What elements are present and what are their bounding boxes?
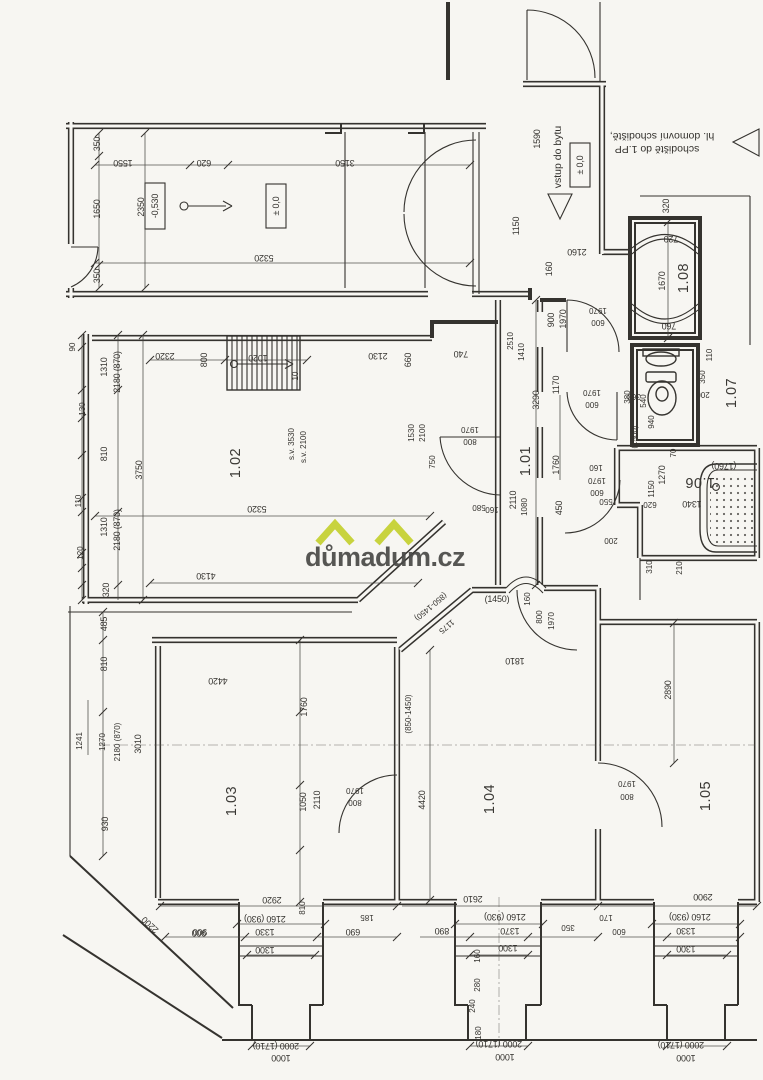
dim-label: 2130 (368, 351, 387, 361)
dim-label: 690 (346, 927, 361, 937)
dim-label: 160 (589, 463, 603, 472)
dim-label: 2110 (508, 491, 518, 510)
dim-label: 620 (643, 500, 657, 509)
corridor-dims: 350 1550 620 1650 2350 350 5320 3150 -0,… (92, 137, 355, 284)
bay-center-dims: 2610 2160 (930) 1370 1300 890 350 160 28… (435, 894, 626, 1062)
dim-label: 3010 (133, 734, 143, 753)
stair-count-label: 10 (291, 371, 300, 380)
dim-label: 1370 (500, 926, 519, 936)
dim-label: 1970 (558, 309, 568, 328)
door-size-label: 1970 (589, 306, 607, 315)
left-chain-dims: 485 810 1241 1270 2180 (870) 3010 930 22… (75, 617, 228, 938)
door-size-label: 1970 (618, 779, 636, 788)
level-label: -0,530 (150, 194, 160, 219)
dim-label: 200 (604, 536, 618, 545)
dimension-lines (78, 129, 761, 1050)
dim-label: 180 (474, 1026, 483, 1040)
ceiling-height-label: s.v. 2100 (299, 431, 308, 463)
dim-label: 2160 (930) (244, 914, 286, 924)
room-label: 1.07 (724, 378, 740, 408)
room-105-dims: 2890 1970 800 1.05 (618, 680, 714, 811)
dim-label: 720 (664, 234, 679, 244)
dim-label: 170 (599, 913, 613, 922)
room-label: 1.05 (698, 781, 714, 811)
dim-label: 900 (193, 927, 208, 937)
dim-label: 2180 (870) (113, 722, 122, 761)
dim-label: 1590 (532, 129, 542, 148)
floor-plan-page: 350 1550 620 1650 2350 350 5320 3150 -0,… (0, 0, 763, 1080)
dim-label: 2900 (693, 892, 712, 902)
dim-label: 1300 (676, 944, 695, 954)
dim-label: 2890 (663, 680, 673, 699)
dim-label: 70 (669, 448, 678, 457)
dim-label: 3750 (134, 460, 144, 479)
dim-label: 550 (599, 497, 613, 506)
door-size-label: 1970 (583, 388, 601, 397)
dim-label: 380 (623, 390, 632, 404)
dim-label: 1150 (647, 480, 656, 498)
door-size-label: 800 (348, 798, 362, 807)
bay-right-dims: 2900 2160 (930) 1330 1300 2000 (1710) 10… (658, 892, 713, 1063)
dim-label: 1241 (75, 732, 84, 750)
dim-label: 800 (199, 353, 209, 368)
dim-label: 2920 (262, 895, 281, 905)
dim-label: 350 (698, 370, 707, 384)
dim-label: 2350 (136, 197, 146, 216)
ceiling-height-label: s.v. 3530 (287, 428, 296, 460)
watermark-roof-icon (318, 524, 352, 543)
dim-label: 2180 (870) (112, 509, 122, 551)
dim-label: 2180 (870) (112, 351, 122, 393)
dim-label: 1340 (682, 499, 701, 509)
dim-label: 2160 (930) (669, 912, 711, 922)
dim-label: 240 (468, 999, 477, 1013)
dim-label: 1050 (298, 792, 308, 811)
dim-label: 1670 (657, 271, 667, 290)
dim-label: 2110 (312, 791, 322, 810)
dim-label: 740 (454, 349, 469, 359)
dim-label: 1410 (517, 343, 526, 361)
dim-label: 310 (645, 560, 654, 574)
level-label: ± 0,0 (575, 155, 585, 174)
dim-label: 2160 (567, 247, 586, 257)
entry-annotation: vstup do bytu (552, 126, 564, 189)
dim-label: 210 (675, 561, 684, 575)
dim-label: 160 (485, 505, 499, 514)
dim-label: 1550 (113, 158, 132, 168)
dim-label: 110 (74, 494, 83, 507)
dim-label: (1500) (630, 425, 639, 448)
dim-label: 5320 (254, 253, 273, 263)
toilet-icon (646, 372, 676, 415)
dim-label: 3290 (531, 390, 541, 409)
floor-plan-svg: 350 1550 620 1650 2350 350 5320 3150 -0,… (0, 0, 763, 1080)
dim-label: 90 (68, 342, 77, 351)
dim-label: 1080 (520, 498, 529, 516)
dim-label: 540 (639, 394, 648, 408)
dim-label: 320 (661, 199, 671, 214)
dim-label: 890 (435, 926, 450, 936)
room-label: 1.03 (224, 786, 240, 816)
staircase-annotation: hl. domovní schodiště, (610, 130, 714, 142)
dim-label: 4420 (208, 676, 227, 686)
dim-label: 1270 (657, 465, 667, 484)
dim-label: 2000 (1710) (476, 1039, 523, 1049)
partition-walls (63, 2, 757, 1040)
dim-label: 130 (78, 402, 87, 416)
dim-label: 350 (92, 269, 102, 284)
dim-label: 3150 (335, 158, 354, 168)
dim-label: 810 (99, 657, 109, 672)
dim-label: 350 (561, 923, 575, 932)
dim-label: 1000 (271, 1053, 290, 1063)
door-size-label: 600 (590, 488, 604, 497)
dim-label: 2000 (1710) (253, 1041, 300, 1051)
dim-label: 1300 (498, 943, 517, 953)
dim-label: 1310 (99, 357, 109, 376)
dim-label: 5320 (247, 504, 266, 514)
dim-label: 120 (76, 546, 85, 560)
dim-label: 1270 (98, 733, 107, 751)
dim-label: 600 (612, 927, 626, 936)
sink-icon (643, 349, 679, 366)
watermark: důmadum.cz (305, 524, 465, 572)
dim-label: 1000 (495, 1052, 514, 1062)
dim-label: 2160 (930) (484, 912, 526, 922)
watermark-roof-icon (377, 524, 411, 543)
room-label: 1.02 (228, 448, 244, 478)
dim-label: (1450) (485, 594, 510, 604)
dim-label: 1000 (676, 1053, 695, 1063)
dim-label: 1650 (92, 199, 102, 218)
dim-label: 1170 (551, 376, 561, 395)
dim-label: 1760 (551, 455, 561, 474)
dim-label: 940 (647, 415, 656, 429)
dim-label: 2100 (418, 424, 427, 442)
dim-label: 620 (197, 158, 212, 168)
dim-label: 750 (428, 455, 437, 469)
dim-label: 320 (101, 583, 111, 598)
dim-label: 930 (100, 817, 110, 832)
dim-label: 760 (662, 321, 677, 331)
door-size-label: 800 (620, 792, 634, 801)
dim-label: 160 (523, 592, 532, 606)
dim-label: 1310 (99, 517, 109, 536)
dim-label: 1810 (505, 656, 524, 666)
dim-label: 660 (403, 353, 413, 368)
door-size-label: 800 (463, 437, 477, 446)
dim-label: (1760) (711, 461, 736, 471)
bay-left-dims: 2920 2160 (930) 1330 1300 900 690 185 81… (193, 895, 374, 1063)
dim-label: 810 (99, 447, 109, 462)
dim-label: 2000 (1710) (658, 1040, 705, 1050)
dim-label: 2320 (155, 351, 174, 361)
room-label: 1.06 (685, 474, 715, 490)
dim-label: 2610 (463, 894, 482, 904)
dim-label: 4420 (417, 790, 427, 809)
door-size-label: 600 (591, 318, 605, 327)
watermark-text: důmadum.cz (305, 542, 465, 572)
door-size-label: 1970 (588, 476, 606, 485)
dim-label: 1150 (511, 217, 521, 236)
dim-label: 4130 (196, 571, 215, 581)
dim-label: 110 (705, 348, 714, 361)
wc-dims: 110 350 200 380 540 940 (1500) 70 1.07 (623, 348, 740, 457)
door-size-label: 600 (585, 400, 599, 409)
level-label: ± 0,0 (271, 196, 281, 215)
dim-label: 1330 (255, 927, 274, 937)
dim-label: 280 (473, 978, 482, 992)
room-label: 1.04 (482, 784, 498, 814)
room-label: 1.08 (676, 263, 692, 293)
door-size-label: 1970 (346, 786, 364, 795)
room-103-dims: 1760 1050 2110 1970 800 1.03 (224, 697, 364, 816)
dim-label: 1300 (255, 945, 274, 955)
door-size-label: 800 (535, 610, 544, 624)
dim-label: 485 (99, 617, 109, 632)
dim-label: 580 (472, 503, 486, 512)
staircase-annotation: schodiště do 1.PP (615, 143, 700, 155)
dim-label: 1020 (248, 353, 267, 363)
door-size-label: 1970 (547, 612, 556, 630)
dim-label: 185 (360, 913, 374, 922)
dim-label: (850-1450) (404, 694, 413, 733)
dim-label: 450 (554, 501, 564, 516)
dim-label: 2200 (139, 915, 160, 936)
dim-label: 1530 (407, 424, 416, 442)
dim-label: 810 (298, 901, 307, 915)
dim-label: 160 (473, 949, 482, 963)
dim-label: 900 (546, 313, 556, 328)
dim-label: 350 (92, 137, 102, 152)
door-size-label: 1970 (461, 425, 479, 434)
room-label: 1.01 (518, 446, 534, 476)
dim-label: 2510 (506, 332, 515, 350)
dim-label: 1760 (299, 697, 309, 716)
dim-label: 200 (696, 390, 710, 399)
dim-label: 1330 (676, 926, 695, 936)
dim-label: 160 (544, 262, 554, 277)
